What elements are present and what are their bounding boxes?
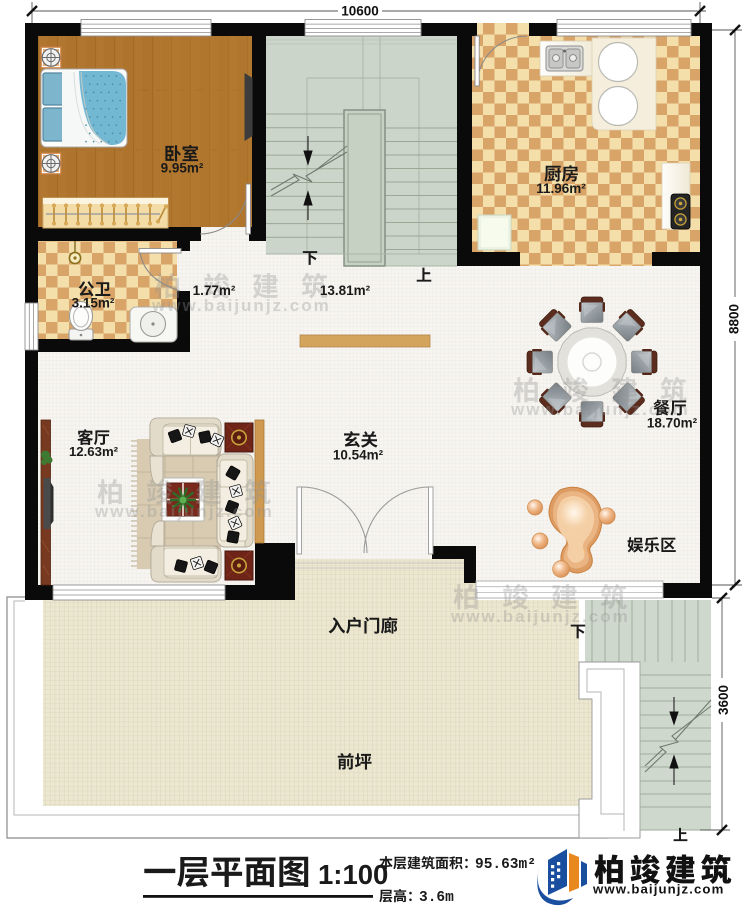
svg-text:3.6m: 3.6m bbox=[419, 890, 454, 906]
svg-text:12.63m²: 12.63m² bbox=[69, 444, 119, 459]
svg-text:10.54m²: 10.54m² bbox=[333, 448, 384, 463]
svg-text:18.70m²: 18.70m² bbox=[647, 416, 698, 431]
svg-text:www.baijunjz.com: www.baijunjz.com bbox=[592, 882, 724, 897]
svg-text:1.77m²: 1.77m² bbox=[193, 283, 236, 298]
svg-text:3600: 3600 bbox=[716, 685, 731, 715]
svg-text:9.95m²: 9.95m² bbox=[161, 161, 204, 176]
svg-text:8800: 8800 bbox=[727, 304, 742, 334]
svg-text:www.baijunjz.com: www.baijunjz.com bbox=[94, 502, 274, 521]
svg-text:10600: 10600 bbox=[341, 4, 379, 19]
svg-text:13.81m²: 13.81m² bbox=[320, 283, 371, 298]
svg-text:3.15m²: 3.15m² bbox=[72, 296, 115, 311]
svg-text:www.baijunjz.com: www.baijunjz.com bbox=[450, 607, 630, 626]
svg-text:www.baijunjz.com: www.baijunjz.com bbox=[151, 296, 331, 315]
svg-text:95.63m²: 95.63m² bbox=[475, 857, 536, 873]
svg-text:11.96m²: 11.96m² bbox=[536, 181, 586, 196]
svg-text:1:100: 1:100 bbox=[318, 859, 388, 890]
